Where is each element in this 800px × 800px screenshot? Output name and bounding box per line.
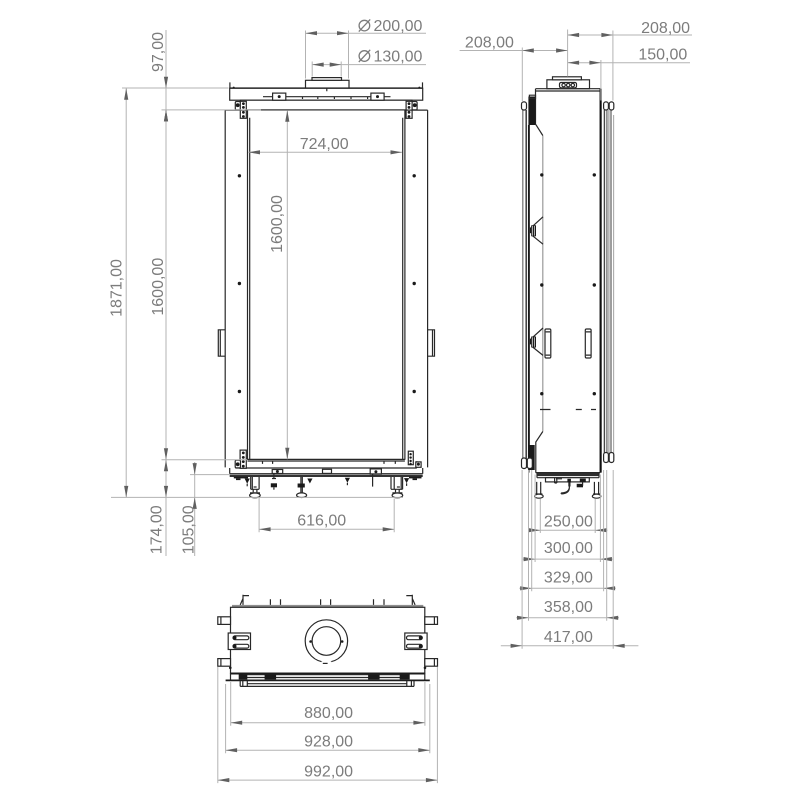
svg-text:200,00: 200,00 [374, 18, 423, 35]
svg-text:724,00: 724,00 [300, 136, 349, 153]
svg-text:208,00: 208,00 [465, 35, 514, 52]
svg-text:174,00: 174,00 [149, 505, 166, 554]
svg-text:97,00: 97,00 [150, 32, 167, 72]
svg-text:208,00: 208,00 [641, 20, 690, 37]
svg-text:105,00: 105,00 [180, 505, 197, 554]
svg-text:928,00: 928,00 [304, 733, 353, 750]
svg-text:992,00: 992,00 [304, 764, 353, 781]
svg-text:1600,00: 1600,00 [150, 258, 167, 316]
svg-text:417,00: 417,00 [544, 629, 593, 646]
svg-text:300,00: 300,00 [544, 540, 593, 557]
svg-text:1871,00: 1871,00 [109, 259, 126, 317]
svg-text:358,00: 358,00 [544, 599, 593, 616]
svg-text:1600,00: 1600,00 [269, 195, 286, 253]
svg-text:150,00: 150,00 [638, 47, 687, 64]
svg-text:616,00: 616,00 [297, 513, 346, 530]
svg-text:250,00: 250,00 [544, 514, 593, 531]
svg-text:329,00: 329,00 [544, 570, 593, 587]
svg-text:130,00: 130,00 [374, 49, 423, 66]
svg-text:880,00: 880,00 [304, 705, 353, 722]
